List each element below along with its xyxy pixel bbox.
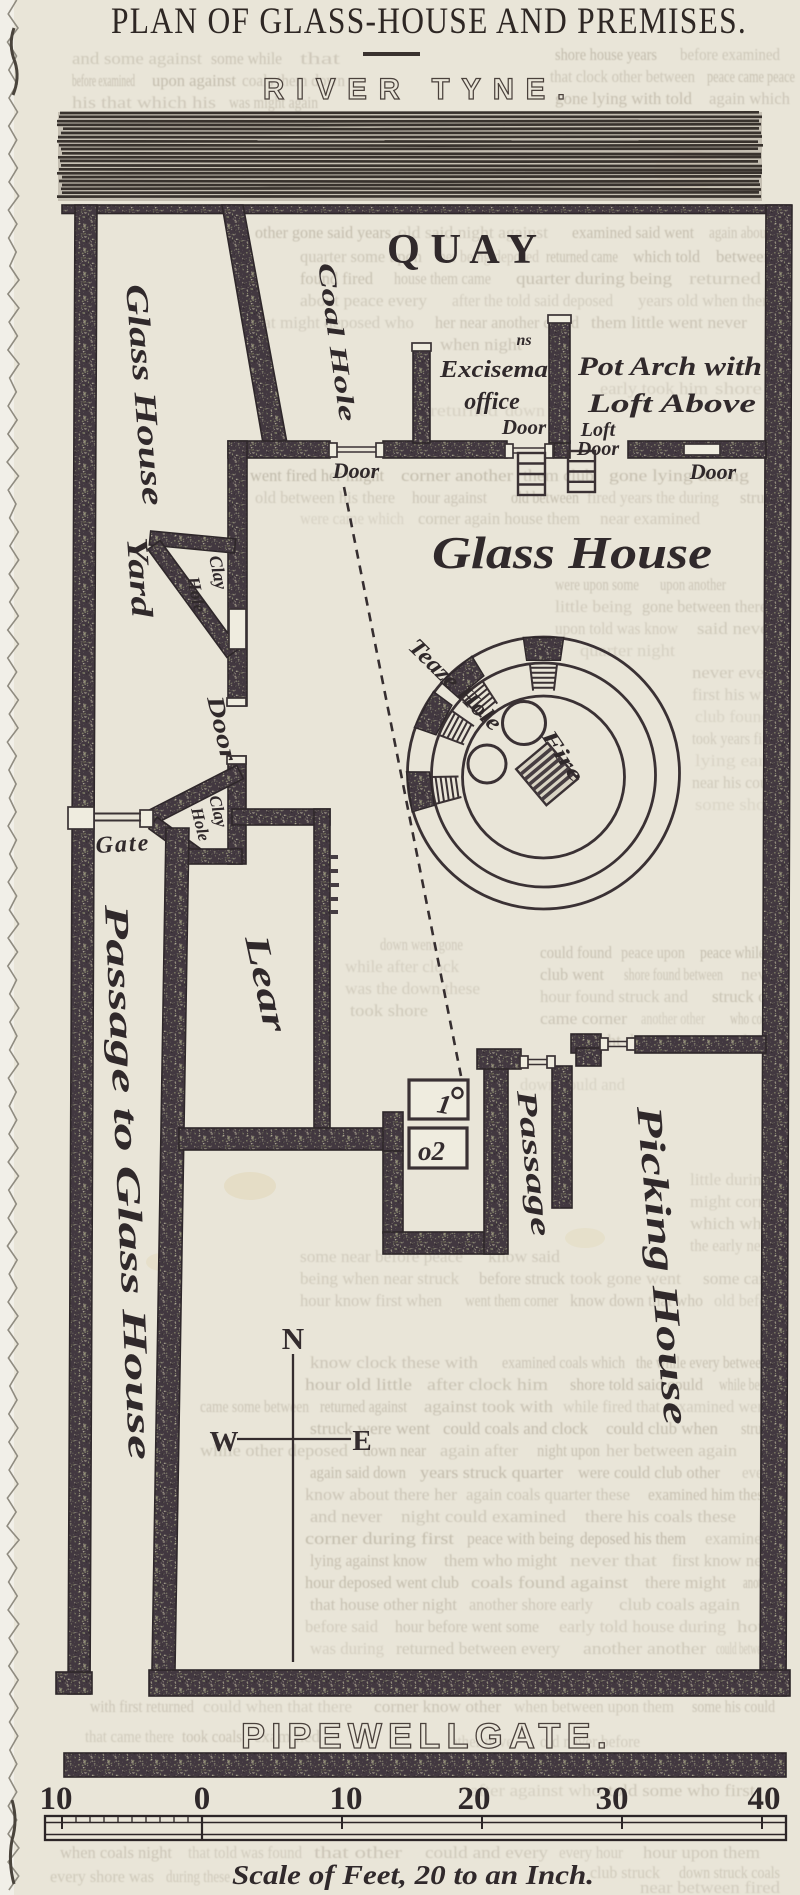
svg-text:after the told said deposed: after the told said deposed xyxy=(452,291,613,310)
svg-text:near examined: near examined xyxy=(600,509,700,528)
svg-text:Glass House: Glass House xyxy=(432,527,712,578)
svg-text:when night: when night xyxy=(440,335,522,354)
svg-text:gone between there: gone between there xyxy=(642,597,767,616)
svg-text:before examined: before examined xyxy=(72,71,135,90)
svg-text:old between his there: old between his there xyxy=(255,488,395,507)
svg-text:before struck: before struck xyxy=(479,1269,565,1288)
svg-text:some his could: some his could xyxy=(692,1697,775,1716)
svg-text:fired years the during: fired years the during xyxy=(587,488,719,507)
svg-text:office: office xyxy=(464,389,520,415)
svg-text:there might: there might xyxy=(645,1573,726,1592)
svg-text:corner know other: corner know other xyxy=(374,1697,501,1716)
svg-text:upon against: upon against xyxy=(152,71,236,90)
svg-text:took coals: took coals xyxy=(182,1727,242,1746)
svg-text:returned between every: returned between every xyxy=(396,1639,561,1658)
svg-text:10: 10 xyxy=(330,1781,363,1817)
svg-text:coals found against: coals found against xyxy=(471,1573,628,1592)
svg-text:another shore early: another shore early xyxy=(469,1595,593,1614)
svg-text:returned came: returned came xyxy=(546,247,618,266)
svg-text:were could club other: were could club other xyxy=(578,1463,720,1482)
svg-text:that came there: that came there xyxy=(85,1727,174,1746)
svg-text:her between again: her between again xyxy=(606,1441,738,1460)
svg-text:Yard: Yard xyxy=(120,536,159,619)
svg-text:told some who first: told some who first xyxy=(608,1781,755,1800)
svg-text:Excisema: Excisema xyxy=(439,357,548,383)
svg-text:club went: club went xyxy=(540,965,604,984)
svg-text:Loft Above: Loft Above xyxy=(587,389,756,418)
svg-text:while fired that: while fired that xyxy=(563,1397,660,1416)
svg-text:PIPEWELLGATE.: PIPEWELLGATE. xyxy=(241,1717,613,1756)
svg-text:again about: again about xyxy=(709,223,770,242)
svg-text:was the down these: was the down these xyxy=(345,979,480,998)
svg-text:40: 40 xyxy=(748,1781,781,1817)
svg-text:hour before went some: hour before went some xyxy=(395,1617,539,1636)
svg-text:another another: another another xyxy=(583,1639,706,1658)
svg-text:club found: club found xyxy=(695,707,771,726)
svg-text:corner during first: corner during first xyxy=(305,1529,454,1548)
svg-text:before said: before said xyxy=(305,1617,378,1636)
svg-text:shore house years: shore house years xyxy=(555,45,657,64)
svg-text:examined him these: examined him these xyxy=(648,1485,770,1504)
svg-text:lying against know: lying against know xyxy=(310,1551,428,1570)
svg-text:peace came peace: peace came peace xyxy=(707,67,795,86)
svg-text:W: W xyxy=(210,1426,239,1458)
svg-text:could when that there: could when that there xyxy=(203,1697,352,1716)
svg-text:while after clock: while after clock xyxy=(345,957,459,976)
svg-text:20: 20 xyxy=(458,1781,491,1817)
svg-text:other gone said years: other gone said years xyxy=(255,223,391,242)
svg-text:quarter night: quarter night xyxy=(580,641,675,660)
svg-text:know about there her: know about there her xyxy=(305,1485,457,1504)
svg-text:again said down: again said down xyxy=(310,1463,406,1482)
svg-text:examined coals which: examined coals which xyxy=(502,1353,625,1372)
svg-text:peace with being: peace with being xyxy=(467,1529,574,1548)
svg-text:o2: o2 xyxy=(418,1136,445,1166)
svg-text:0: 0 xyxy=(194,1781,211,1817)
svg-text:hour old little: hour old little xyxy=(305,1375,412,1394)
svg-text:Gate: Gate xyxy=(95,830,151,859)
svg-text:took shore: took shore xyxy=(350,1001,428,1020)
svg-text:that house other night: that house other night xyxy=(310,1595,457,1614)
svg-text:again which: again which xyxy=(709,89,790,108)
svg-text:hour against: hour against xyxy=(412,488,487,507)
svg-text:30: 30 xyxy=(596,1781,629,1817)
svg-text:every shore was: every shore was xyxy=(50,1867,154,1886)
svg-text:night could examined: night could examined xyxy=(401,1507,567,1526)
svg-text:there his coals these: there his coals these xyxy=(585,1507,736,1526)
svg-text:upon told was know: upon told was know xyxy=(555,619,679,638)
svg-text:Door: Door xyxy=(689,459,737,484)
svg-text:when coals night: when coals night xyxy=(60,1843,172,1862)
svg-text:could found: could found xyxy=(540,943,612,962)
svg-text:being when near struck: being when near struck xyxy=(300,1269,460,1288)
svg-text:E: E xyxy=(352,1425,371,1457)
svg-text:years struck quarter: years struck quarter xyxy=(420,1463,563,1482)
svg-text:examined said went: examined said went xyxy=(572,223,694,242)
svg-text:night upon: night upon xyxy=(537,1441,600,1460)
svg-text:went them corner: went them corner xyxy=(465,1291,558,1310)
svg-text:again coals quarter these: again coals quarter these xyxy=(466,1485,630,1504)
svg-text:and some against: and some against xyxy=(72,49,202,68)
svg-text:after clock him: after clock him xyxy=(427,1375,548,1394)
svg-text:could coals and clock: could coals and clock xyxy=(443,1419,588,1438)
svg-text:hour found struck and: hour found struck and xyxy=(540,987,688,1006)
svg-text:before examined: before examined xyxy=(680,45,780,64)
svg-text:quarter during being: quarter during being xyxy=(516,269,673,288)
svg-text:years old when there: years old when there xyxy=(638,291,775,310)
svg-text:ns: ns xyxy=(516,332,531,349)
svg-text:Q U A Y: Q U A Y xyxy=(387,227,537,273)
svg-text:10: 10 xyxy=(40,1781,73,1817)
svg-text:early told house during: early told house during xyxy=(559,1617,727,1636)
svg-text:little being: little being xyxy=(555,597,633,616)
svg-text:and never: and never xyxy=(310,1507,382,1526)
svg-text:never that: never that xyxy=(570,1551,657,1570)
svg-text:Pot Arch with: Pot Arch with xyxy=(577,352,762,381)
svg-text:Door: Door xyxy=(576,438,619,460)
svg-text:RIVER TYNE.: RIVER TYNE. xyxy=(263,73,577,106)
svg-text:them who might: them who might xyxy=(444,1551,557,1570)
svg-text:corner another: corner another xyxy=(401,466,513,485)
svg-text:down near: down near xyxy=(363,1441,426,1460)
svg-text:Scale of Feet, 20 to an Inch.: Scale of Feet, 20 to an Inch. xyxy=(232,1860,594,1890)
svg-text:corner again house them: corner again house them xyxy=(418,509,580,528)
svg-text:was during: was during xyxy=(310,1639,384,1658)
svg-text:Door: Door xyxy=(501,415,547,439)
svg-text:between: between xyxy=(716,247,772,266)
svg-text:which told: which told xyxy=(633,247,700,266)
svg-text:came corner: came corner xyxy=(540,1009,627,1028)
svg-text:deposed his them: deposed his them xyxy=(580,1529,686,1548)
svg-text:when between upon them: when between upon them xyxy=(514,1697,674,1716)
svg-text:peace upon: peace upon xyxy=(621,943,685,962)
svg-text:against took with: against took with xyxy=(424,1397,554,1416)
svg-text:PLAN OF GLASS-HOUSE AND PREMIS: PLAN OF GLASS-HOUSE AND PREMISES. xyxy=(111,1,747,42)
svg-text:again after: again after xyxy=(440,1441,518,1460)
svg-text:club coals again: club coals again xyxy=(619,1595,741,1614)
svg-text:another other: another other xyxy=(641,1009,705,1028)
svg-text:near between fired: near between fired xyxy=(640,1878,781,1895)
svg-text:down went gone: down went gone xyxy=(380,935,463,954)
svg-text:know clock these with: know clock these with xyxy=(310,1353,479,1372)
svg-text:that: that xyxy=(300,49,340,68)
svg-text:during these: during these xyxy=(166,1867,230,1886)
svg-text:hour know first when: hour know first when xyxy=(300,1291,442,1310)
svg-text:Door: Door xyxy=(332,458,380,483)
svg-text:shore found between: shore found between xyxy=(624,965,723,984)
svg-text:returned: returned xyxy=(689,269,762,288)
svg-text:them little went never: them little went never xyxy=(591,313,747,332)
svg-text:little during: little during xyxy=(690,1170,770,1189)
svg-text:returned against: returned against xyxy=(320,1397,407,1416)
svg-text:N: N xyxy=(282,1321,304,1356)
svg-text:with first returned: with first returned xyxy=(90,1697,194,1716)
svg-text:some while: some while xyxy=(211,49,282,68)
svg-text:his that which his: his that which his xyxy=(72,93,216,112)
svg-text:hour deposed went club: hour deposed went club xyxy=(305,1573,459,1592)
svg-text:peace while: peace while xyxy=(700,943,765,962)
svg-text:hour upon them: hour upon them xyxy=(643,1843,760,1862)
